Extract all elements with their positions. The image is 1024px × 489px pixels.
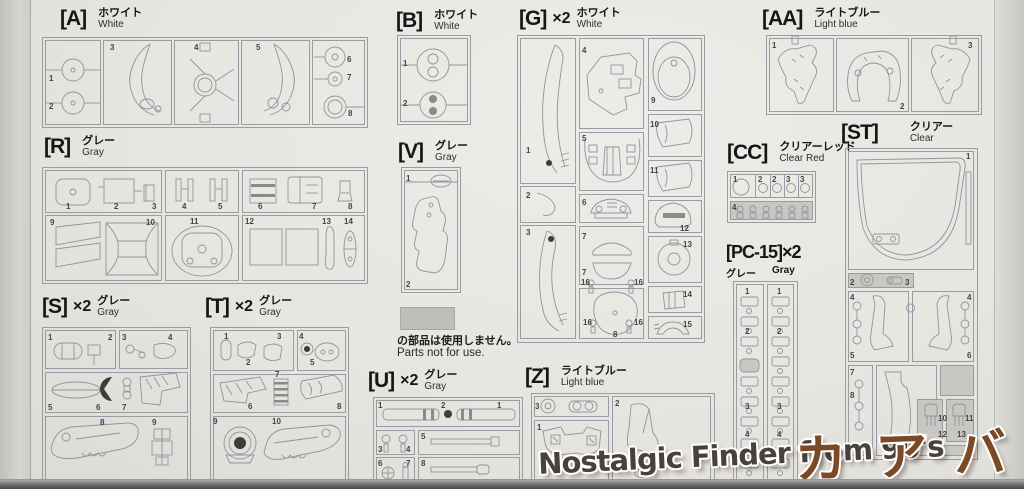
color-name-en: Gray	[97, 308, 130, 319]
part-number: 7	[122, 403, 127, 412]
part-number: 16	[581, 278, 590, 287]
part-number: 3	[777, 402, 782, 411]
color-name-jp: ホワイト	[98, 8, 142, 20]
not-for-use-note-en: Parts not for use.	[397, 347, 485, 359]
watermark-logo-segment: アメ	[874, 413, 946, 489]
color-name-en: White	[98, 20, 142, 31]
sprue-a-drawing: 1 2 3 4 5 6 7 8	[42, 37, 368, 128]
part-number: 11	[190, 217, 199, 226]
part-number: 1	[497, 401, 502, 410]
sprue-cc-drawing: 1 2 2 3 3 4	[727, 171, 816, 223]
sprue-st-header: [ST] クリアー Clear	[841, 122, 953, 144]
part-number: 1	[733, 175, 738, 184]
part-number: 14	[344, 217, 353, 226]
sprue-frame	[402, 168, 461, 293]
part-number: 5	[421, 432, 426, 441]
sprue-b-header: [B] ホワイト White	[396, 10, 478, 32]
sprue-parts	[537, 42, 695, 335]
sprue-g-header: [G] ×2 ホワイト White	[519, 8, 621, 30]
sprue-pc15-header: [PC-15]×2 グレーGray	[726, 242, 801, 280]
part-number: 16	[583, 318, 592, 327]
sprue-v-drawing: 1 2	[401, 167, 461, 293]
sprue-frame	[43, 168, 368, 284]
part-number: 3	[535, 402, 540, 411]
paper-left-edge	[0, 0, 31, 489]
sprue-aa-drawing: 1 2 3	[766, 35, 982, 115]
part-number: 4	[406, 445, 411, 454]
part-number: 4	[168, 333, 173, 342]
part-number: 10	[272, 417, 281, 426]
part-number: 2	[108, 333, 113, 342]
sprue-parts	[382, 409, 515, 480]
part-number: 5	[310, 358, 315, 367]
part-number: 1	[378, 401, 383, 410]
part-number: 2	[777, 327, 782, 336]
sprue-code: [T]	[205, 296, 229, 317]
part-number: 5	[48, 403, 53, 412]
sprue-code: [G]	[519, 8, 546, 29]
watermark-logo-segment: バー	[953, 410, 1024, 489]
part-number: 2	[403, 99, 408, 108]
sprue-b-drawing: 1 2	[397, 35, 471, 125]
sprue-u-header: [U] ×2 グレー Gray	[368, 370, 457, 392]
sprue-parts	[56, 177, 356, 276]
part-number: 8	[348, 109, 353, 118]
part-number: 3	[905, 278, 910, 287]
part-number: 1	[66, 202, 71, 211]
part-number: 7	[582, 232, 587, 241]
sprue-v-header: [V] グレー Gray	[398, 141, 468, 163]
color-name-en: Gray	[435, 153, 468, 164]
part-number: 2	[850, 278, 855, 287]
part-number: 1	[777, 287, 782, 296]
color-name-jp: グレー	[97, 296, 130, 308]
part-number: 3	[526, 228, 531, 237]
part-number: 5	[582, 134, 587, 143]
color-name-en: Gray	[772, 265, 795, 280]
part-number: 16	[634, 318, 643, 327]
part-number: 2	[900, 102, 905, 111]
part-number: 10	[650, 120, 659, 129]
part-number: 6	[258, 202, 263, 211]
part-number: 8	[421, 459, 426, 468]
part-number: 6	[96, 403, 101, 412]
part-number: 9	[651, 96, 656, 105]
part-number: 6	[967, 351, 972, 360]
sprue-code: [B]	[396, 10, 422, 31]
color-name-en: White	[577, 20, 621, 31]
sprue-multiplier: ×2	[400, 373, 418, 389]
part-number: 7	[275, 370, 280, 379]
sprue-code: [Z]	[525, 366, 549, 387]
part-number: 5	[218, 202, 223, 211]
sprue-parts	[405, 175, 457, 273]
color-name-jp: グレー	[424, 370, 457, 382]
part-number: 3	[277, 332, 282, 341]
sprue-r-header: [R] グレー Gray	[44, 136, 115, 158]
color-name-jp: グレー	[726, 265, 756, 280]
sprue-t-header: [T] ×2 グレー Gray	[205, 296, 292, 318]
sprue-code: [V]	[398, 141, 423, 162]
part-number: 4	[194, 43, 199, 52]
sprue-t-drawing: 1 2 3 4 5 6 7 8 9 10	[210, 327, 349, 485]
part-number: 1	[48, 333, 53, 342]
part-number: 5	[850, 351, 855, 360]
color-name-en: Gray	[424, 382, 457, 393]
sprue-z-header: [Z] ライトブルー Light blue	[525, 366, 627, 388]
color-name-en: Light blue	[561, 378, 627, 389]
part-number: 4	[850, 293, 855, 302]
color-name-jp: グレー	[259, 296, 292, 308]
paper-bottom-edge	[0, 479, 1024, 489]
part-number: 7	[347, 73, 352, 82]
color-name-jp: ライトブルー	[561, 366, 627, 378]
sprue-g-drawing: 1 2 3 4 5 6 7 7 16 16 8 16 16 9 10 11 12…	[517, 35, 705, 343]
part-number: 8	[100, 418, 105, 427]
part-number: 12	[680, 224, 689, 233]
part-number: 6	[347, 55, 352, 64]
part-number: 2	[615, 399, 620, 408]
parts-sheet-photo: [A] ホワイト White [B] ホワイト White [G] ×2 ホワイ…	[0, 0, 1024, 489]
part-number: 8	[348, 202, 353, 211]
color-name-en: Light blue	[814, 20, 880, 31]
color-name-en: Gray	[259, 308, 292, 319]
part-number: 8	[613, 330, 618, 339]
part-number: 8	[337, 402, 342, 411]
sprue-code: [PC-15]	[726, 242, 782, 262]
part-number: 2	[441, 401, 446, 410]
sprue-parts	[401, 49, 467, 118]
part-number: 4	[967, 293, 972, 302]
sprue-parts	[46, 43, 364, 122]
part-number: 4	[182, 202, 187, 211]
sprue-code: [AA]	[762, 8, 802, 29]
part-number: 1	[745, 287, 750, 296]
part-number: 11	[650, 166, 659, 175]
color-name-jp: ライトブルー	[814, 8, 880, 20]
part-number: 2	[745, 327, 750, 336]
sprue-code: [S]	[42, 296, 67, 317]
sprue-a-header: [A] ホワイト White	[60, 8, 142, 30]
sprue-cc-header: [CC] クリアーレッド Clear Red	[727, 142, 856, 164]
part-number: 2	[758, 175, 763, 184]
sprue-parts	[853, 158, 971, 456]
sprue-code: [R]	[44, 136, 70, 157]
watermark-logo: カメ アメ バー	[793, 410, 1024, 489]
part-number: 1	[772, 41, 777, 50]
part-number: 4	[732, 203, 737, 212]
sprue-code: [A]	[60, 8, 86, 29]
part-number: 6	[378, 459, 383, 468]
part-number: 9	[50, 218, 55, 227]
sprue-multiplier: ×2	[73, 299, 91, 315]
part-number: 9	[152, 418, 157, 427]
color-name-jp: ホワイト	[577, 8, 621, 20]
part-number: 13	[322, 217, 331, 226]
part-number: 15	[683, 320, 692, 329]
color-name-en: Clear	[910, 134, 953, 145]
part-number: 7	[406, 459, 411, 468]
part-number: 1	[526, 146, 531, 155]
part-number: 7	[312, 202, 317, 211]
part-number: 8	[850, 391, 855, 400]
part-number: 2	[406, 280, 411, 289]
sprue-aa-header: [AA] ライトブルー Light blue	[762, 8, 880, 30]
sprue-u-drawing: 1 2 1 3 4 5 6 7 8	[373, 397, 523, 485]
part-number: 1	[406, 174, 411, 183]
sprue-multiplier: ×2	[782, 242, 801, 262]
sprue-s-drawing: 1 2 3 4 5 6 7 8 9	[42, 327, 191, 485]
color-name-jp: ホワイト	[434, 10, 478, 22]
part-number: 2	[526, 191, 531, 200]
part-number: 4	[582, 46, 587, 55]
color-name-en: Gray	[82, 148, 115, 159]
color-name-jp: グレー	[435, 141, 468, 153]
part-number: 16	[634, 278, 643, 287]
sprue-s-header: [S] ×2 グレー Gray	[42, 296, 130, 318]
part-number: 6	[582, 198, 587, 207]
part-number: 2	[114, 202, 119, 211]
part-number: 3	[968, 41, 973, 50]
part-number: 2	[246, 358, 251, 367]
sprue-multiplier: ×2	[552, 11, 570, 27]
part-number: 2	[772, 175, 777, 184]
sprue-parts	[778, 45, 970, 103]
part-number: 5	[256, 43, 261, 52]
color-name-en: White	[434, 22, 478, 33]
sprue-code: [ST]	[841, 122, 878, 143]
part-number: 1	[49, 74, 54, 83]
part-number: 1	[403, 59, 408, 68]
part-number: 7	[582, 268, 587, 277]
part-number: 7	[850, 368, 855, 377]
part-number: 3	[786, 175, 791, 184]
sprue-parts	[220, 340, 342, 463]
part-number: 13	[683, 240, 692, 249]
part-number: 3	[378, 445, 383, 454]
part-number: 1	[224, 332, 229, 341]
part-number: 9	[213, 417, 218, 426]
part-number: 6	[248, 402, 253, 411]
part-number: 3	[800, 175, 805, 184]
part-number: 14	[683, 290, 692, 299]
part-number: 4	[299, 332, 304, 341]
part-number: 3	[152, 202, 157, 211]
not-for-use-swatch	[400, 307, 455, 330]
part-number: 1	[537, 423, 542, 432]
watermark-logo-segment: カメ	[793, 416, 867, 489]
sprue-code: [U]	[368, 370, 394, 391]
not-for-use-note-jp: の部品は使用しません。	[397, 332, 518, 348]
color-name-jp: クリアー	[910, 122, 953, 134]
sprue-frame	[767, 36, 982, 115]
color-name-jp: グレー	[82, 136, 115, 148]
sprue-r-drawing: 1 2 3 4 5 6 7 8 9 10 11 12 13 14	[42, 167, 368, 284]
part-number: 3	[122, 333, 127, 342]
part-number: 12	[245, 217, 254, 226]
part-number: 2	[49, 102, 54, 111]
sprue-code: [CC]	[727, 142, 767, 163]
sprue-multiplier: ×2	[235, 299, 253, 315]
part-number: 3	[110, 43, 115, 52]
part-number: 1	[966, 152, 971, 161]
part-number: 3	[745, 402, 750, 411]
part-number: 10	[146, 218, 155, 227]
